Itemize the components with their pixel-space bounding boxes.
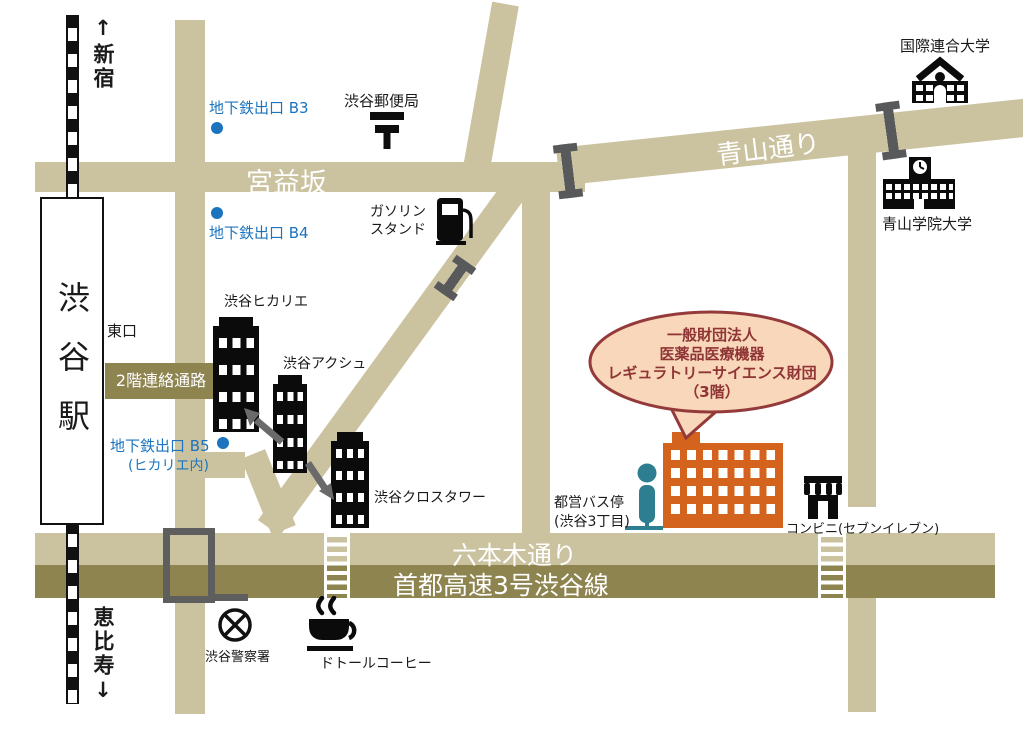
aoyama-gakuin-label: 青山学院大学 (882, 213, 972, 234)
shibuya-station-label: 渋谷駅 (49, 281, 95, 458)
aoyama-gakuin-icon (883, 157, 955, 209)
destination-line1: 一般財団法人 (601, 326, 823, 345)
hikarie-label: 渋谷ヒカリエ (224, 291, 308, 311)
passage-label: 2階連絡通路 (116, 371, 206, 390)
subway-exit-b3-label: 地下鉄出口 B3 (209, 97, 309, 118)
post-office-icon (370, 110, 406, 150)
subway-exit-b5-label: 地下鉄出口 B5 (110, 435, 210, 456)
road-vertical-east-upper (848, 135, 876, 507)
road-diagonal-upper (461, 2, 519, 184)
post-office-label: 渋谷郵便局 (344, 90, 419, 111)
crosswalk-west (324, 533, 350, 598)
station-overpass-outline (163, 528, 215, 603)
walking-route-arrows (230, 400, 350, 510)
doutor-label: ドトールコーヒー (320, 653, 432, 673)
bus-stop-label: 都営バス停 (554, 492, 624, 512)
destination-bubble-text: 一般財団法人 医薬品医療機器 レギュラトリーサイエンス財団 （3階） (601, 326, 823, 402)
gas-station-icon (436, 197, 474, 249)
miyamasuzaka-label: 宮益坂 (246, 161, 327, 200)
road-vertical-center (522, 178, 550, 535)
crosswalk-east (818, 533, 846, 598)
direction-ebisu: 恵比寿↓ (88, 606, 118, 705)
un-university-icon (911, 56, 969, 104)
bus-stop-note: (渋谷3丁目) (554, 511, 630, 531)
destination-line3: レギュラトリーサイエンス財団 (601, 364, 823, 383)
axsh-label: 渋谷アクシュ (283, 353, 366, 373)
subway-exit-b4-dot (211, 207, 223, 219)
railway-north (66, 15, 79, 197)
destination-windows (671, 450, 775, 514)
destination-building (663, 443, 783, 528)
road-vertical-east-lower (848, 598, 876, 712)
station-overpass-line (215, 594, 248, 601)
subway-exit-b3-dot (211, 122, 223, 134)
expressway-label: 首都高速3号渋谷線 (393, 566, 609, 602)
east-exit-label: 東口 (107, 320, 137, 341)
subway-exit-b4-label: 地下鉄出口 B4 (209, 222, 309, 243)
cross-tower-label: 渋谷クロスタワー (374, 487, 486, 507)
police-label: 渋谷警察署 (205, 646, 270, 665)
gas-station-label: ガソリン スタンド (370, 204, 426, 239)
un-university-label: 国際連合大学 (900, 35, 990, 56)
destination-line4: （3階） (601, 383, 823, 402)
police-icon (216, 606, 254, 644)
access-map: 2階連絡通路 渋谷駅 ↑新宿 恵比寿↓ 東口 地下鉄出口 B3 地下鉄出口 B4… (0, 0, 1023, 743)
railway-south (66, 521, 79, 704)
conbini-label: コンビニ(セブンイレブン) (786, 518, 939, 537)
destination-line2: 医薬品医療機器 (601, 345, 823, 364)
passage-band: 2階連絡通路 (105, 363, 217, 399)
subway-exit-b5-note: (ヒカリエ内) (128, 455, 209, 475)
doutor-icon (306, 596, 358, 654)
shibuya-station-box: 渋谷駅 (40, 197, 104, 525)
conbini-icon (803, 476, 843, 520)
subway-exit-b5-dot (217, 437, 229, 449)
gas-station-line2: スタンド (370, 222, 426, 240)
gas-station-line1: ガソリン (370, 204, 426, 222)
direction-shinjuku: ↑新宿 (88, 16, 118, 91)
